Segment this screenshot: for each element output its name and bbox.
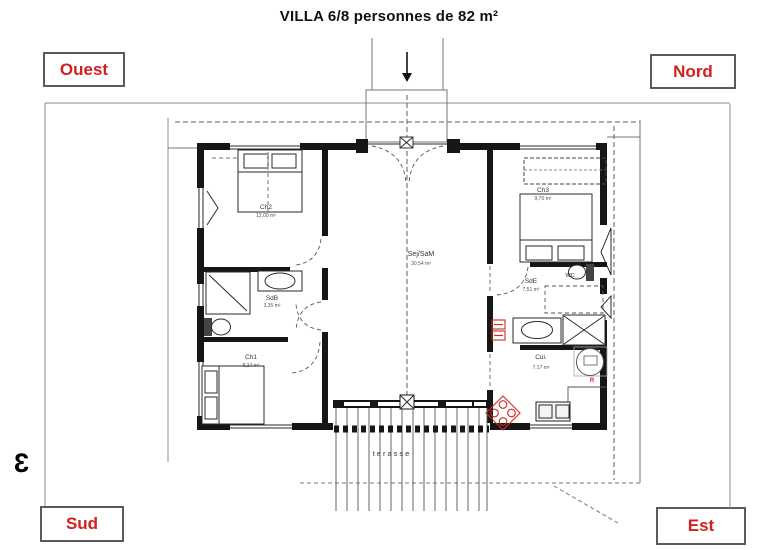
- floor-plan-page: VILLA 6/8 personnes de 82 m² Ouest Nord …: [0, 0, 778, 550]
- terrace-deck: [334, 408, 489, 511]
- room-label-wc: WC: [565, 273, 574, 279]
- property-boundary: [45, 103, 730, 508]
- room-label-ch2: Ch2: [260, 204, 272, 211]
- terrace-bay: [333, 395, 490, 409]
- room-area-ch3: 9,70 m²: [535, 196, 552, 202]
- room-label-ch3: Ch3: [537, 187, 549, 194]
- bed-ch1: [202, 366, 264, 424]
- toilet-sdb: [204, 318, 231, 336]
- room-area-ch1: 8,24 m²: [243, 363, 260, 369]
- wardrobe-ch3: [524, 158, 606, 184]
- room-label-ch1: Ch1: [245, 354, 257, 361]
- room-area-sdb: 3,35 m²: [264, 303, 281, 309]
- floor-plan-svg: Ch2 12,00 m² Ch3 9,70 m² Ch1 8,24 m² Sej…: [0, 0, 778, 550]
- entrance-arrow-icon: [402, 52, 412, 82]
- appliance-markers-red: [492, 320, 505, 340]
- terrace-label: terasse: [373, 449, 412, 458]
- bed-ch3: [520, 194, 592, 262]
- shower-sde: [563, 315, 605, 345]
- door-triangle-ch3: [601, 228, 611, 275]
- bed-ch2: [212, 150, 302, 212]
- room-area-kitchen: 7,17 m²: [533, 365, 550, 371]
- fridge-label: R: [590, 378, 595, 384]
- room-label-sde: SdE: [525, 278, 538, 285]
- room-label-living: Sej/SaM: [408, 251, 435, 258]
- room-area-living: 30,54 m²: [411, 261, 431, 267]
- kitchen-sink: [536, 402, 570, 421]
- room-area-sde: 7,51 m²: [523, 287, 540, 293]
- entrance-walkway: [366, 38, 447, 400]
- shower-sdb: [206, 272, 250, 314]
- closet-sde: [545, 286, 603, 313]
- room-label-sdb: SdB: [266, 295, 278, 302]
- room-area-ch2: 12,00 m²: [256, 213, 276, 219]
- sink-sdb: [258, 271, 302, 291]
- room-label-kitchen: Cui.: [535, 354, 547, 361]
- shutter-icon-ch2: [207, 191, 218, 225]
- sink-sde: [513, 318, 561, 343]
